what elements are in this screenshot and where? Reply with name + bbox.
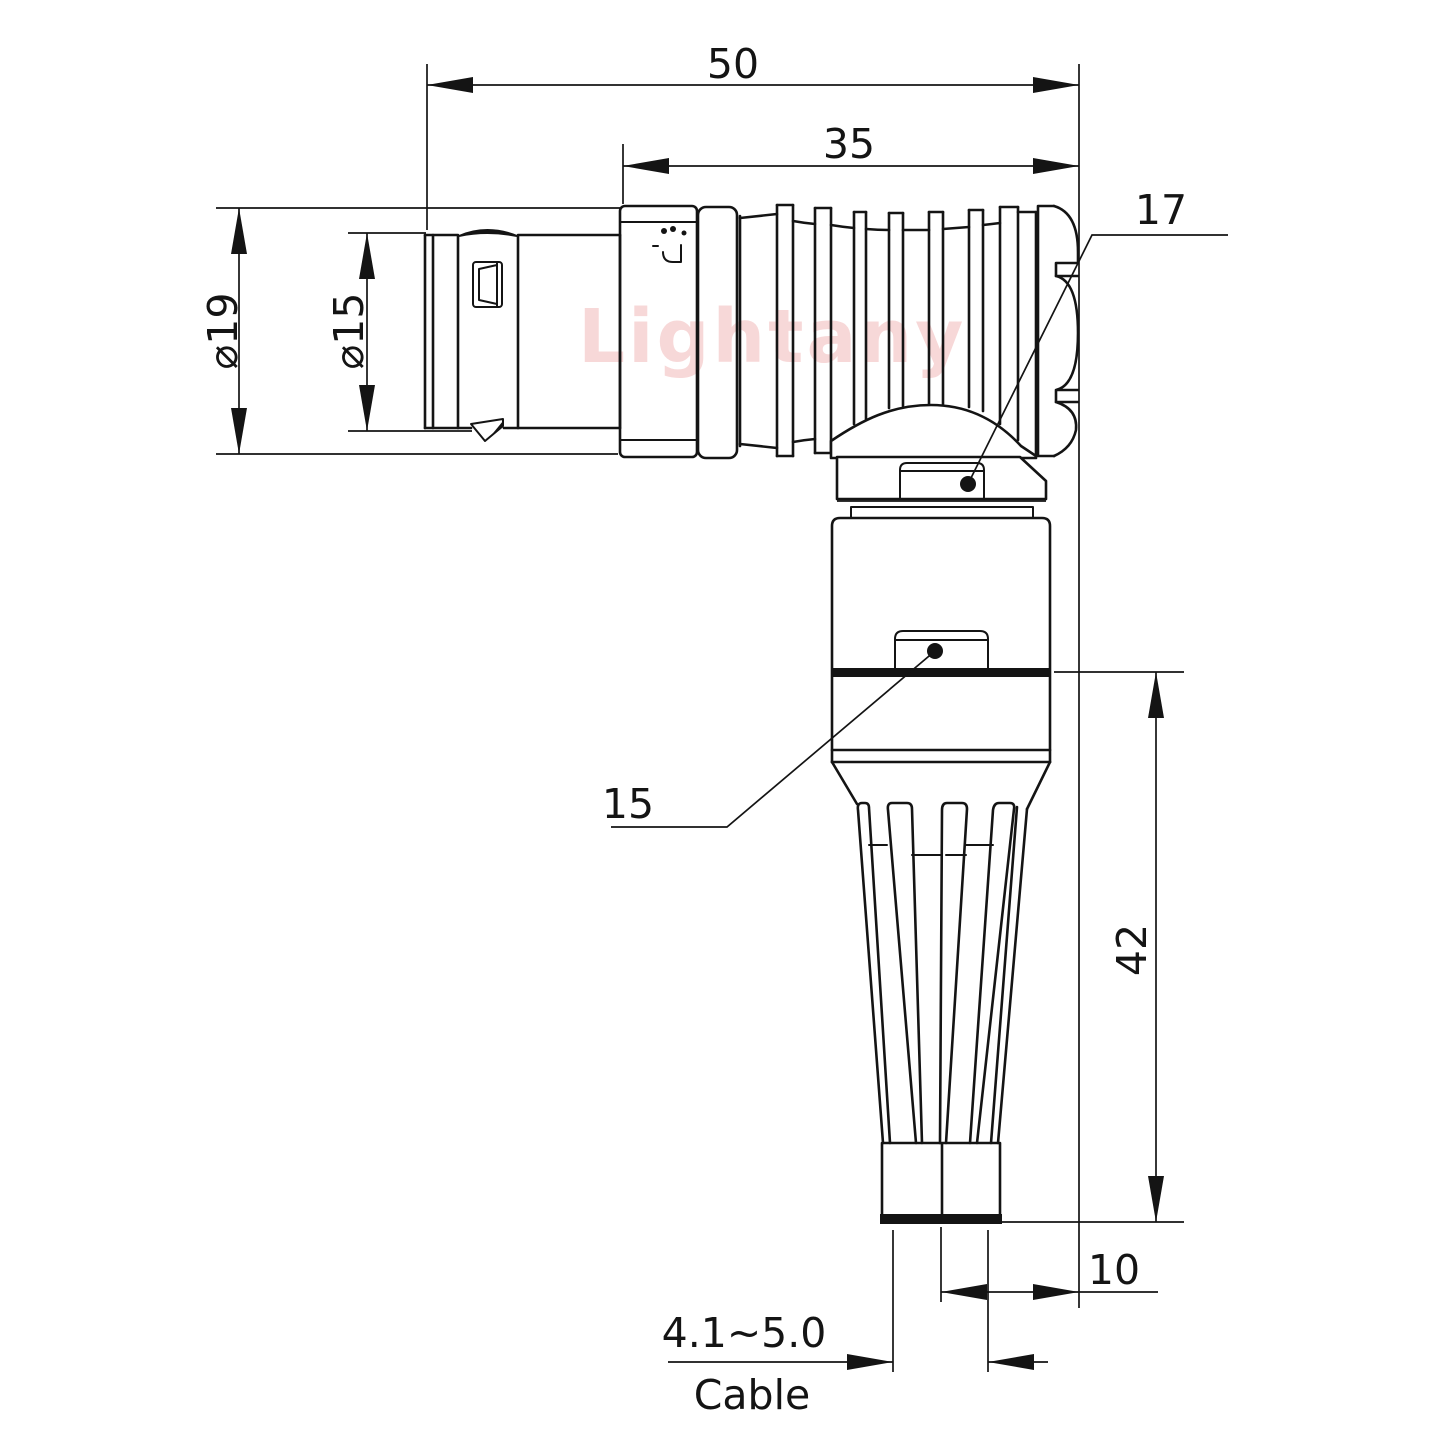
clamp-band <box>831 668 1051 677</box>
dimension-cable: 4.1~5.0 Cable <box>662 1309 1048 1419</box>
ext-lines-d19 <box>216 208 620 454</box>
dim-label-50: 50 <box>707 40 759 88</box>
washer-ring <box>851 507 1033 518</box>
watermark: Lightany <box>578 294 966 380</box>
housing-cylinder <box>831 518 1051 762</box>
dim-label-42: 42 <box>1108 924 1156 976</box>
elbow-assembly <box>831 457 1051 1224</box>
dimension-35: 35 <box>623 120 1079 174</box>
engraved-brand-mark <box>653 226 687 262</box>
dimension-42: 42 <box>1108 672 1164 1222</box>
callout-label-15: 15 <box>602 780 654 828</box>
latch-cap <box>459 230 517 236</box>
elbow-dome <box>831 405 1036 458</box>
dimension-10: 10 <box>941 1246 1158 1300</box>
dimension-d15: ⌀15 <box>325 233 375 431</box>
strain-relief-boot <box>832 762 1050 1143</box>
keyway-window <box>473 262 502 307</box>
dim-label-d19: ⌀19 <box>199 293 247 370</box>
callout-label-17: 17 <box>1135 186 1187 234</box>
dim-label-cable-word: Cable <box>694 1371 810 1419</box>
dim-label-10: 10 <box>1088 1246 1140 1294</box>
technical-drawing: Lightany <box>0 0 1440 1440</box>
ext-lines-cable <box>893 1227 988 1372</box>
dim-label-35: 35 <box>823 120 875 168</box>
dimension-50: 50 <box>427 40 1079 93</box>
dimensions: 50 35 ⌀19 ⌀15 17 <box>199 40 1228 1419</box>
cable-bushing <box>880 1143 1002 1224</box>
dimension-d19: ⌀19 <box>199 208 247 454</box>
dim-label-d15: ⌀15 <box>325 293 373 370</box>
bottom-key <box>471 419 503 441</box>
drawing-page: Lightany <box>0 0 1440 1440</box>
callout-15: 15 <box>602 651 935 828</box>
dim-label-cable-range: 4.1~5.0 <box>662 1309 827 1357</box>
elbow-cap-band <box>837 457 1046 501</box>
